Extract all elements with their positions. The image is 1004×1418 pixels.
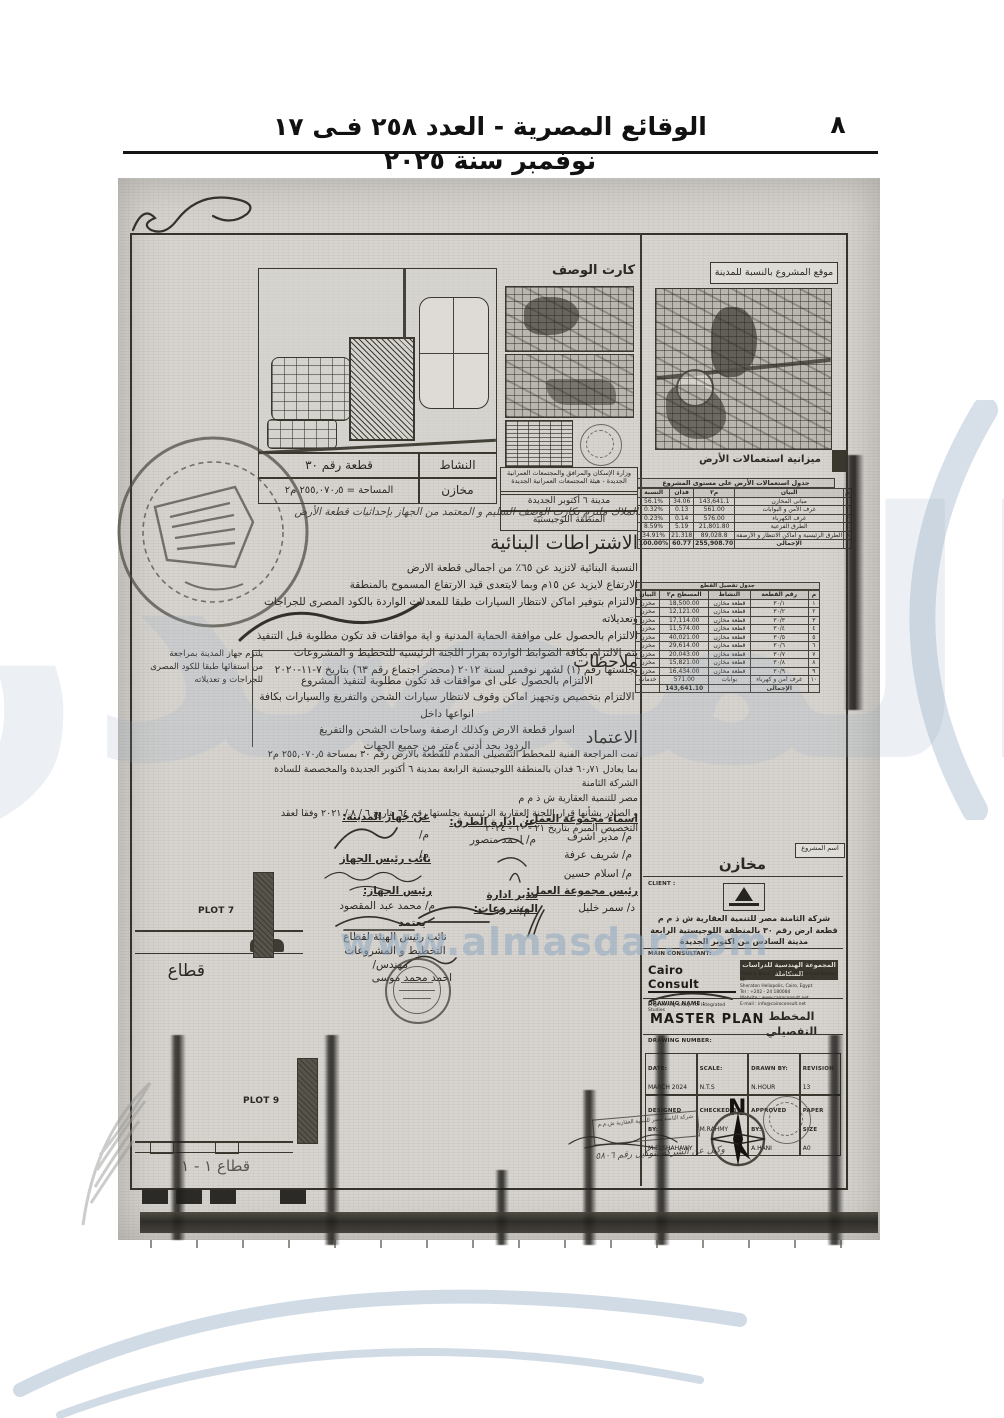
table-cell: ٣٠/٤: [750, 625, 808, 634]
text-line: الارتفاع لايزيد عن ١٥م وبما لايتعدى قيد …: [256, 577, 638, 594]
text-line: E-mail : info@cairoconsult.net: [740, 1002, 838, 1008]
table-cell: غرف الكهرباء: [735, 514, 844, 523]
plot-block: [271, 357, 351, 421]
legend-cell: [210, 1190, 236, 1204]
table-cell: ١: [808, 599, 819, 608]
gazette-page: الوقائع المصرية - العدد ٢٥٨ فـى ١٧ نوفمب…: [0, 0, 1004, 1418]
table-cell: غرف أمن و كهرباء: [750, 676, 808, 685]
titleblock-divider: [643, 948, 843, 949]
titleblock-divider: [643, 876, 843, 877]
road-line: [403, 269, 406, 339]
client-logo-bar: [729, 903, 759, 906]
text-line: الالتزام بالحصول على موافقة الحماية المد…: [256, 628, 638, 645]
legend-cell: [280, 1190, 306, 1204]
table-cell: 89,028.8: [694, 531, 735, 540]
text-line: تمت المراجعة الفنية للمخطط التفصيلى المق…: [246, 748, 638, 763]
table-cell: 0.23%: [638, 514, 670, 523]
info-date: DATE: MARCH 2024: [645, 1053, 697, 1095]
text-line: يلتزم جهاز المدينة بمراجعة: [118, 648, 263, 661]
table-cell: 255,908.70: [694, 540, 735, 549]
table-cell: م٢: [694, 489, 735, 498]
text-line: م/ شريف عرفة: [520, 846, 632, 864]
table-cell: ٢: [808, 608, 819, 617]
table-cell: 8.59%: [638, 523, 670, 532]
table-cell: ٣٠/١: [750, 599, 808, 608]
table-cell: قطعة مخازن: [709, 667, 751, 676]
table-cell: البيان: [636, 591, 660, 600]
round-stamp: [763, 1096, 811, 1144]
section-wall-hatch: [253, 872, 274, 958]
table-row: ٢٣٠/٢قطعة مخازن12,121.00مخزن: [636, 608, 820, 617]
table-cell: بوابات: [709, 676, 751, 685]
table-cell: ٣٠/٢: [750, 608, 808, 617]
table-row: ٤٣٠/٤قطعة مخازن11,574.00مخزن: [636, 625, 820, 634]
text-line: الالتزام بالحصول على اى موافقات قد تكون …: [258, 673, 636, 689]
table-row: ٩٣٠/٩قطعة مخازن16,434.00مخزن: [636, 667, 820, 676]
table-cell: 0.32%: [638, 506, 670, 515]
land-use-table-title: جدول استعمالات الأرض على مستوى المشروع: [637, 478, 835, 488]
desc-map-1: [505, 286, 634, 352]
table-row: ١مبانى المخازن143,641.134.0656.1%: [638, 497, 852, 506]
roads-dept-label: عن ادارة الطرق:: [440, 815, 536, 829]
location-map-title: موقع المشروع بالنسبة للمدينة: [710, 262, 838, 284]
table-cell: ٧: [808, 650, 819, 659]
table-cell: 143,641.1: [694, 497, 735, 506]
land-use-table: مالبيانم٢فدانالنسبة١مبانى المخازن143,641…: [637, 488, 835, 549]
intro-line: الملاك ملتزم بكارت الوصف السليم و المعتم…: [280, 505, 638, 519]
scan-table: مالبيانم٢فدانالنسبة١مبانى المخازن143,641…: [637, 488, 852, 549]
group-head-name: د/ سمر خليل: [545, 901, 635, 915]
table-cell: غرف الأمن و البوابات: [735, 506, 844, 515]
table-cell: [709, 684, 751, 693]
header-rule: [123, 151, 878, 154]
stamp-text-lines: [399, 990, 435, 991]
table-cell: مخزن: [636, 599, 660, 608]
desc-mini-table: [505, 420, 573, 467]
table-cell: ١٠: [808, 676, 819, 685]
client-logo-mark: [735, 887, 753, 901]
stamp-text-lines: [401, 982, 433, 983]
map-road: [656, 358, 830, 380]
table-cell: البيان: [735, 489, 844, 498]
conditions-heading: الاشتراطات البنائية: [470, 531, 638, 557]
map-circle-feature: [676, 369, 714, 407]
titleblock-divider: [643, 998, 843, 999]
stamp-inner-ring: [586, 430, 614, 458]
plot-block: [419, 297, 489, 409]
section-line: [135, 930, 303, 932]
table-cell: ٣: [808, 616, 819, 625]
stamp-inner-ring: [769, 1102, 803, 1136]
section-tick: [215, 1142, 239, 1154]
consultant-address: Plaza 4, Block 1123, Abd El Hameed Badaw…: [740, 972, 838, 1008]
activity-label-cell: النشاط: [418, 452, 497, 479]
info-value: N.HOUR: [751, 1084, 775, 1091]
map-dark-area: [546, 379, 616, 405]
table-row: ٨٣٠/٨قطعة مخازن15,821.00مخزن: [636, 659, 820, 668]
table-cell: رقم القطعة: [750, 591, 808, 600]
info-label: SCALE:: [700, 1066, 723, 1072]
table-cell: قطعة مخازن: [709, 608, 751, 617]
table-cell: 561.00: [694, 506, 735, 515]
table-row: ٣غرف الكهرباء576.000.140.23%: [638, 514, 852, 523]
map-dark-area: [524, 297, 579, 335]
table-cell: 576.00: [694, 514, 735, 523]
plot-divider: [420, 353, 488, 354]
approval-heading: الاعتماد: [572, 727, 638, 750]
deputy-head-label: نائب رئيس الجهاز: [335, 852, 431, 866]
table-cell: قطعة مخازن: [709, 650, 751, 659]
map-dark-area: [711, 307, 757, 377]
table-cell: 0.13: [670, 506, 694, 515]
plots-table-title: جدول تفصيل القطع: [635, 582, 820, 590]
section-line: [135, 953, 303, 954]
table-row: ٥الطرق الرئيسية و أماكن الانتظار و الأرص…: [638, 531, 852, 540]
text-line: مصر للتنمية العقارية ش ذ م م: [246, 792, 638, 807]
info-value: A0: [803, 1145, 811, 1152]
table-cell: قطعة مخازن: [709, 659, 751, 668]
info-label: DRAWN BY:: [751, 1066, 788, 1072]
text-line: م/: [395, 826, 429, 846]
table-cell: قطعة مخازن: [709, 642, 751, 651]
table-cell: 40,021.00: [660, 633, 709, 642]
table-row: ١٣٠/١قطعة مخازن18,500.00مخزن: [636, 599, 820, 608]
table-row: ٤الطرق الفرعية21,801.805.198.59%: [638, 523, 852, 532]
key-plan-panel: [258, 268, 497, 454]
table-cell: النسبة: [638, 489, 670, 498]
roads-dept-name: م/ احمد منصور: [440, 833, 536, 847]
plots-table: مرقم القطعةالنشاطالمسطح م٢البيان١٣٠/١قطع…: [635, 590, 820, 693]
table-cell: 100.00%: [638, 540, 670, 549]
table-cell: ٣٠/٩: [750, 667, 808, 676]
compass-rose-icon: [707, 1108, 769, 1170]
scan-bottom-band: [140, 1212, 878, 1233]
table-cell: 60.77: [670, 540, 694, 549]
table-cell: قطعة مخازن: [709, 616, 751, 625]
table-cell: مبانى المخازن: [735, 497, 844, 506]
map-dark-area: [666, 384, 726, 439]
plots-table-wrap: جدول تفصيل القطع مرقم القطعةالنشاطالمسطح…: [635, 582, 820, 693]
approve-title1: نائب رئيس الهيئة لقطاع: [325, 930, 465, 944]
table-cell: ٥: [808, 633, 819, 642]
approval-stamp: [385, 958, 451, 1024]
table-cell: 34.91%: [638, 531, 670, 540]
subject-plot-hatched: [349, 337, 415, 441]
scan-streak: [495, 1170, 509, 1245]
desc-stamp-icon: [580, 424, 622, 466]
text-line: قطعة ارض رقم ٣٠ بالمنطقة اللوجيستية الرا…: [650, 925, 838, 937]
project-name-value: مخازن: [645, 854, 840, 874]
table-cell: 15,821.00: [660, 659, 709, 668]
page-title: الوقائع المصرية - العدد ٢٥٨ فـى ١٧ نوفمب…: [230, 110, 750, 178]
feather-watermark-icon: [55, 1075, 175, 1240]
land-use-table-wrap: جدول استعمالات الأرض على مستوى المشروع م…: [637, 478, 835, 549]
table-cell: مخزن: [636, 616, 660, 625]
text-line: الالتزام بتخصيص وتجهيز اماكن وقوف لانتظا…: [258, 689, 636, 722]
client-label: CLIENT :: [648, 881, 675, 887]
table-cell: قطعة مخازن: [709, 599, 751, 608]
section-wall-hatch: [297, 1058, 318, 1144]
table-cell: 20,043.00: [660, 650, 709, 659]
table-cell: ٦: [808, 642, 819, 651]
consultant-name: Cairo Consult: [648, 963, 736, 993]
table-cell: المسطح م٢: [660, 591, 709, 600]
table-row: ١٠غرف أمن و كهرباءبوابات571.00خدمات: [636, 676, 820, 685]
text-line: للجراجات و تعديلاته: [118, 674, 263, 687]
text-line: م/ اسلام حسين: [520, 865, 632, 883]
info-drawn: DRAWN BY: N.HOUR: [748, 1053, 800, 1095]
text-line: م/ مدير اشرف: [520, 828, 632, 846]
page-number: ٨: [818, 110, 858, 139]
table-cell: 56.1%: [638, 497, 670, 506]
info-value: N.T.S: [700, 1084, 715, 1091]
table-cell: الإجمالى: [735, 540, 844, 549]
agency-head-label: رئيس الجهاز:: [340, 884, 432, 898]
land-budget-label: ميزانية استعمالات الأرض: [690, 453, 830, 467]
table-cell: 0.14: [670, 514, 694, 523]
table-cell: م: [808, 591, 819, 600]
scan-ruler-ticks: [150, 1240, 870, 1248]
text-line: الالتزام بتوفير اماكن لانتظار السيارات ط…: [256, 594, 638, 628]
table-cell: ٣٠/٦: [750, 642, 808, 651]
table-cell: 571.00: [660, 676, 709, 685]
info-value: 13: [803, 1084, 811, 1091]
scan-table: مرقم القطعةالنشاطالمسطح م٢البيان١٣٠/١قطع…: [635, 590, 820, 693]
table-row: الإجمالى143,641.10: [636, 684, 820, 693]
table-cell: فدان: [670, 489, 694, 498]
work-group-label: اسماء مجموعة العمل:: [520, 812, 638, 826]
table-cell: 143,641.10: [660, 684, 709, 693]
table-cell: الطرق الفرعية: [735, 523, 844, 532]
table-cell: ٣٠/٧: [750, 650, 808, 659]
table-cell: الطرق الرئيسية و أماكن الانتظار و الأرصف…: [735, 531, 844, 540]
table-cell: 21,801.80: [694, 523, 735, 532]
table-row: ٥٣٠/٥قطعة مخازن40,021.00مخزن: [636, 633, 820, 642]
client-logo: [723, 883, 765, 911]
table-cell: النشاط: [709, 591, 751, 600]
table-cell: 12,121.00: [660, 608, 709, 617]
table-cell: ٣٠/٣: [750, 616, 808, 625]
work-group-names: م/ مدير اشرفم/ شريف عرفةم/ اسلام حسين: [520, 828, 632, 883]
text-line: بما يعادل ٦٠٫٧١ فدان بالمنطقة اللوجيستية…: [246, 763, 638, 792]
section-label: قطاع: [145, 960, 205, 983]
table-row: ٣٣٠/٣قطعة مخازن17,114.00مخزن: [636, 616, 820, 625]
table-cell: مخزن: [636, 633, 660, 642]
text-line: النسبة البنائية لاتزيد عن ٦٥٪ من اجمالى …: [256, 560, 638, 577]
table-cell: [808, 684, 819, 693]
table-cell: مخزن: [636, 625, 660, 634]
table-row: الإجمالى255,908.7060.77100.00%: [638, 540, 852, 549]
titleblock-divider: [643, 1034, 843, 1035]
stamp-note: يلتزم جهاز المدينة بمراجعةمن استفائها طب…: [118, 648, 263, 686]
table-cell: الإجمالى: [750, 684, 808, 693]
table-cell: مخزن: [636, 642, 660, 651]
table-cell: قطعة مخازن: [709, 625, 751, 634]
table-cell: ٩: [808, 667, 819, 676]
info-scale: SCALE: N.T.S: [697, 1053, 749, 1095]
table-row: مرقم القطعةالنشاطالمسطح م٢البيان: [636, 591, 820, 600]
table-row: ٢غرف الأمن و البوابات561.000.130.32%: [638, 506, 852, 515]
stamp-text-lines: [403, 998, 431, 999]
drawing-name-label: DRAWING NAME :: [648, 1001, 705, 1007]
activity-value-cell: مخازن: [418, 477, 497, 504]
table-cell: ٤: [808, 625, 819, 634]
table-cell: 29,614.00: [660, 642, 709, 651]
plot9-label: PLOT 9: [243, 1096, 279, 1106]
consultant-label: MAIN CONSULTANT:: [648, 951, 712, 957]
plot7-label: PLOT 7: [198, 906, 234, 916]
desc-map-2: [505, 354, 634, 418]
approve-label: يعتمد: [382, 916, 442, 930]
text-line: شركة الثامنة مصر للتنمية العقارية ش ذ م …: [650, 913, 838, 925]
scan-streak: [844, 455, 864, 710]
table-cell: ٣٠/٨: [750, 659, 808, 668]
table-cell: قطعة مخازن: [709, 633, 751, 642]
info-grid: DATE: MARCH 2024 SCALE: N.T.S DRAWN BY: …: [645, 1053, 841, 1093]
text-line: Plaza 4, Block 1123, Abd El Hameed Badaw…: [740, 972, 838, 984]
text-line: مدينة السادس من اكتوبر الجديدة: [650, 936, 838, 948]
desc-card-title: كارت الوصف: [497, 262, 641, 280]
table-cell: ٣٠/٥: [750, 633, 808, 642]
table-cell: ٨: [808, 659, 819, 668]
table-row: ٧٣٠/٧قطعة مخازن20,043.00مخزن: [636, 650, 820, 659]
table-cell: 11,574.00: [660, 625, 709, 634]
client-lines: شركة الثامنة مصر للتنمية العقارية ش ذ م …: [650, 913, 838, 948]
table-cell: 5.19: [670, 523, 694, 532]
table-cell: 18,500.00: [660, 599, 709, 608]
location-map: [655, 288, 832, 450]
table-cell: 21.318: [670, 531, 694, 540]
table-cell: 34.06: [670, 497, 694, 506]
table-row: مالبيانم٢فدانالنسبة: [638, 489, 852, 498]
table-row: ٦٣٠/٦قطعة مخازن29,614.00مخزن: [636, 642, 820, 651]
table-cell: مخزن: [636, 608, 660, 617]
text-line: من استفائها طبقا للكود المصرى: [118, 661, 263, 674]
table-cell: 16,434.00: [660, 667, 709, 676]
table-cell: 17,114.00: [660, 616, 709, 625]
notes-heading: ملاحظات: [560, 651, 638, 674]
